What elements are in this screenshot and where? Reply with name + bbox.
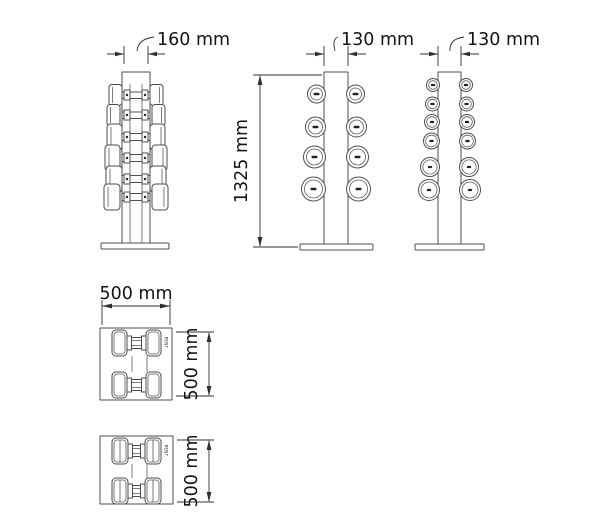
top-view-small-dumbbells: 500 mm [100,434,214,507]
top-large-dumbbell-back [112,372,161,398]
dumbbell-end [347,85,365,103]
dumbbell-end [424,133,440,149]
front-width-dimension: 160 mm [107,30,230,64]
dumbbell-collar-left [127,378,132,392]
dumbbell-collar-right [142,378,147,392]
dumbbell-end [347,146,369,168]
top-view-large-dumbbells: 500 mm 500 mm [99,284,214,401]
side-large-width-dimension: 130 mm [306,30,414,66]
dumbbell-end [427,79,440,92]
top-large-depth-dimension-label: 500 mm [182,327,202,400]
leader-line [334,37,338,51]
dumbbell-plate-right [152,105,165,126]
dumbbell-plate-left [109,85,122,106]
dumbbell-end [306,117,326,137]
dumbbell-collar-right [142,336,147,350]
dumbbell-end [347,177,371,201]
dumbbell-plate-right [152,184,168,210]
dumbbell-collar-left [128,444,133,458]
side-small-width-dimension: 130 mm [420,30,540,66]
dumbbell-plate-left [104,184,120,210]
leader-line [137,37,154,51]
side-small-width-dimension-label: 130 mm [467,30,540,50]
dumbbell-end [460,79,473,92]
dumbbell-collar-right [141,484,146,498]
side-small-post [438,72,461,244]
height-dimension-label: 1325 mm [232,119,252,203]
dumbbell-end [460,115,475,130]
dumbbell-plate-right [150,85,163,106]
dumbbell-end [302,177,326,201]
dumbbell-end [460,133,476,149]
side-large-dumbbell-ends-right [347,85,371,201]
dumbbell-plate-left [107,105,120,126]
side-large-post [324,72,348,244]
dumbbell-collar-left [127,336,132,350]
side-large-width-dimension-label: 130 mm [341,30,414,50]
dumbbell-end [421,158,440,177]
dumbbell-end [304,146,326,168]
dumbbell-collar-left [128,484,133,498]
dumbbell-end [460,97,474,111]
dumbbell-end [426,97,440,111]
side-large-dumbbell-ends-left [302,85,326,201]
top-large-width-dimension: 500 mm [99,284,172,325]
side-view-small-dumbbells: 130 mm [415,30,540,250]
front-base-plate [101,243,169,249]
brand-label: PENT. [164,445,169,458]
dumbbell-end [425,115,440,130]
front-view: 160 mm [101,30,230,249]
dumbbell-end [460,180,481,201]
top-small-depth-dimension-label: 500 mm [182,434,202,507]
dumbbell-collar-right [141,444,146,458]
dumbbell-end [460,158,479,177]
technical-drawing-canvas: 160 mm [0,0,601,526]
top-large-depth-dimension: 500 mm [176,327,214,400]
top-large-dumbbell-front [112,330,161,356]
side-view-large-dumbbells: 130 mm 1325 mm [232,30,414,250]
top-large-width-dimension-label: 500 mm [99,284,172,304]
top-small-depth-dimension: 500 mm [177,434,214,507]
top-small-dumbbell-back [112,478,161,504]
side-small-base-plate [415,244,484,250]
top-small-dumbbell-front [112,438,161,464]
dumbbell-rack-drawing: 160 mm [0,0,601,526]
dumbbell-end [419,180,440,201]
dumbbell-end [347,117,367,137]
side-small-dumbbell-ends-left [419,79,440,201]
leader-line [450,37,464,51]
side-small-dumbbell-ends-right [460,79,481,201]
side-large-base-plate [300,244,373,250]
front-width-dimension-label: 160 mm [157,30,230,50]
brand-label: PENT. [164,337,169,350]
dumbbell-end [308,85,326,103]
